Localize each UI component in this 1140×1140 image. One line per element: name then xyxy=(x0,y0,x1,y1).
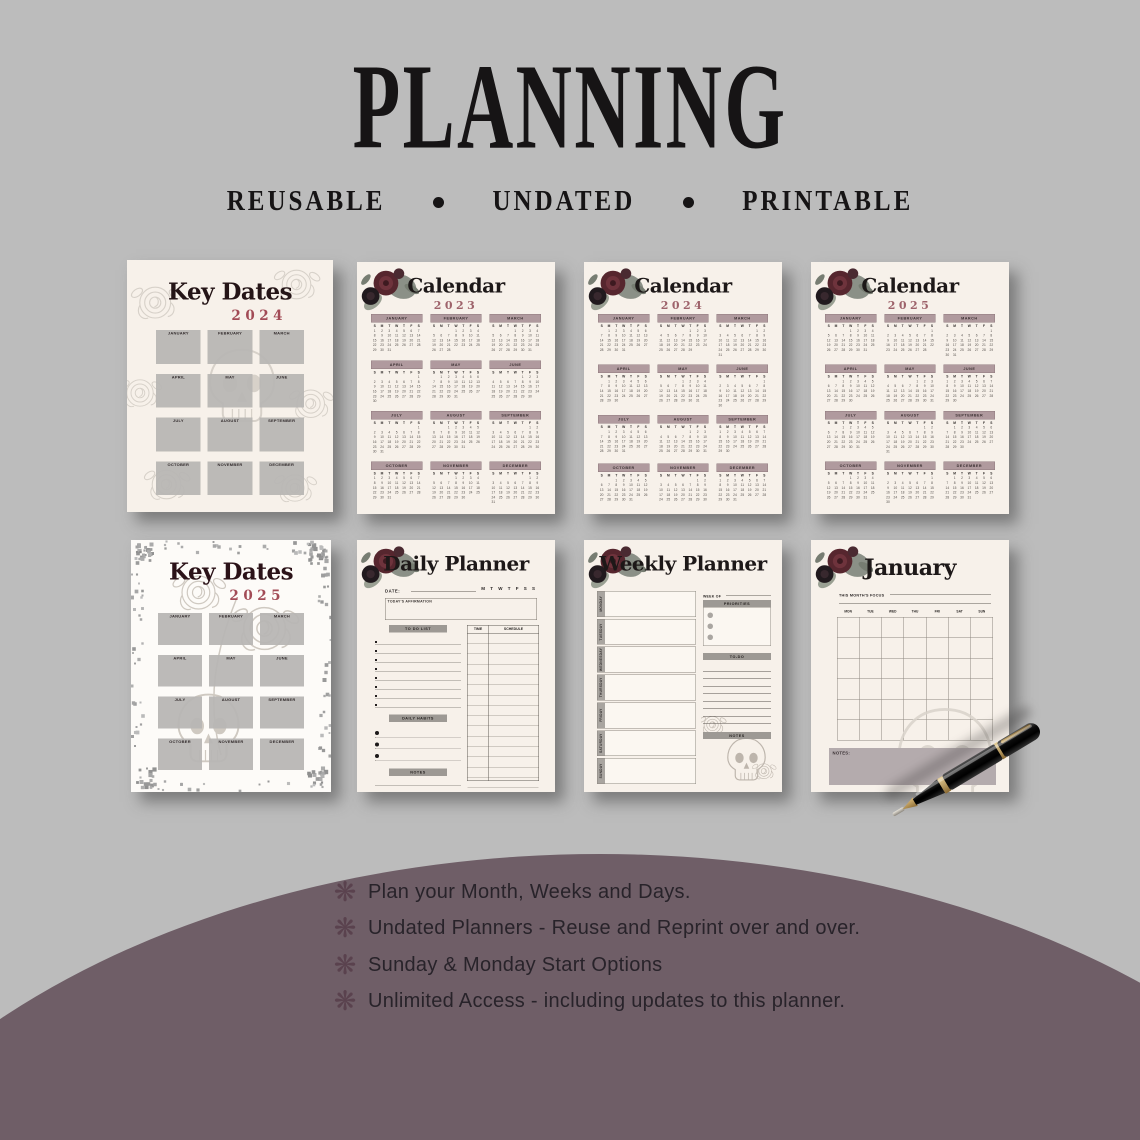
mini-month-header: JUNE xyxy=(944,365,995,374)
day-number: 27 xyxy=(973,348,980,353)
date-label: DATE: xyxy=(385,589,400,594)
day-number: 24 xyxy=(892,348,899,353)
mini-month-september: SEPTEMBERSMTWTFS123456789101112131415161… xyxy=(490,411,541,455)
mini-month-january: JANUARYSMTWTFS12345678910111213141516171… xyxy=(371,314,422,353)
day-number: 27 xyxy=(980,394,987,399)
day-number: 28 xyxy=(753,399,760,404)
day-box-wednesday: WEDNESDAY xyxy=(597,647,696,673)
mini-month-days: SMTWTFS123456789101112131415161718192021… xyxy=(371,471,422,500)
day-box-thursday: THURSDAY xyxy=(597,675,696,701)
day-tab-label: TUESDAY xyxy=(600,623,604,640)
mini-month-days: SMTWTFS123456789101112131415161718192021… xyxy=(884,375,935,404)
weekday-header-fri: FRI xyxy=(926,610,948,614)
month-label: SEPTEMBER xyxy=(259,419,304,424)
mini-month-header: DECEMBER xyxy=(490,461,541,470)
todo-header: TO-DO xyxy=(703,653,771,660)
badge-undated: UNDATED xyxy=(492,186,635,218)
day-number: 27 xyxy=(512,495,519,500)
day-number: 27 xyxy=(504,394,511,399)
mini-month-days: SMTWTFS123456789101112131415161718192021… xyxy=(944,324,995,358)
calendar-cell xyxy=(860,659,882,680)
day-number: 27 xyxy=(497,348,504,353)
day-number: 26 xyxy=(430,495,437,500)
day-number: 30 xyxy=(958,495,965,500)
month-label: OCTOBER xyxy=(156,462,201,467)
mini-month-april: APRILSMTWTFS1234567891011121314151617181… xyxy=(825,365,876,404)
mini-month-header: JUNE xyxy=(490,360,541,369)
day-number: 29 xyxy=(951,445,958,450)
day-number: 24 xyxy=(620,394,627,399)
calendar-cell xyxy=(838,700,860,721)
mini-month-header: JUNE xyxy=(717,365,768,374)
todo-line xyxy=(375,645,461,654)
todo-lines xyxy=(703,664,771,724)
mini-month-days: SMTWTFS123456789101112131415161718192021… xyxy=(825,375,876,404)
day-number: 26 xyxy=(746,493,753,498)
day-number: 26 xyxy=(490,348,497,353)
priorities-box xyxy=(703,607,771,646)
calendar-cell xyxy=(882,679,904,700)
mini-month-header: NOVEMBER xyxy=(430,461,481,470)
day-number: 28 xyxy=(840,495,847,500)
day-number: 27 xyxy=(642,394,649,399)
month-box-june: JUNE xyxy=(259,374,304,408)
mini-month-october: OCTOBERSMTWTFS12345678910111213141516171… xyxy=(598,464,649,505)
schedule-row xyxy=(468,685,539,695)
schedule-row xyxy=(468,778,539,788)
day-number: 29 xyxy=(415,394,422,399)
calendar-cell xyxy=(904,679,926,700)
mini-month-header: DECEMBER xyxy=(717,464,768,473)
day-tab-label: FRIDAY xyxy=(600,709,604,722)
mini-month-february: FEBRUARYSMTWTFS1234567891011121314151617… xyxy=(430,314,481,353)
day-number: 28 xyxy=(512,394,519,399)
planner-page-key-dates-2024: Key Dates 2024 JANUARYFEBRUARYMARCHAPRIL… xyxy=(127,260,333,512)
month-box-december: DECEMBER xyxy=(259,461,304,495)
day-number: 29 xyxy=(526,445,533,450)
calendar-cell xyxy=(860,679,882,700)
day-number: 27 xyxy=(988,440,995,445)
separator-dot-icon xyxy=(683,197,694,208)
day-number: 27 xyxy=(512,445,519,450)
day-number: 25 xyxy=(657,348,664,353)
day-number: 26 xyxy=(746,444,753,449)
weekday-header-sat: SAT xyxy=(948,610,970,614)
page-title-key-dates: Key Dates xyxy=(131,558,331,585)
feature-item: ❋Undated Planners - Reuse and Reprint ov… xyxy=(330,911,950,948)
day-number: 29 xyxy=(914,399,921,404)
day-number: 31 xyxy=(452,394,459,399)
day-number: 31 xyxy=(701,449,708,454)
mini-month-days: SMTWTFS123456789101112131415161718192021… xyxy=(490,421,541,450)
day-number: 27 xyxy=(914,495,921,500)
day-number: 25 xyxy=(627,444,634,449)
month-box-september: SEPTEMBER xyxy=(260,697,304,729)
day-number: 28 xyxy=(944,445,951,450)
day-number: 29 xyxy=(371,495,378,500)
day-number: 29 xyxy=(452,495,459,500)
day-number: 25 xyxy=(474,491,481,496)
page-year: 2024 xyxy=(127,308,333,324)
month-label: JANUARY xyxy=(156,331,201,336)
day-number: 30 xyxy=(534,495,541,500)
day-tab: SATURDAY xyxy=(598,731,606,756)
focus-line-2 xyxy=(839,603,991,604)
checkbox-icon xyxy=(375,650,377,652)
day-number: 27 xyxy=(914,348,921,353)
planner-page-calendar-2025: Calendar 2025 JANUARYSMTWTFS123456789101… xyxy=(811,262,1009,514)
calendar-cell xyxy=(838,638,860,659)
mini-month-february: FEBRUARYSMTWTFS1234567891011121314151617… xyxy=(884,314,935,358)
weekday-header-wed: WED xyxy=(882,610,904,614)
priority-bullet xyxy=(708,624,714,630)
daily-habits-header: DAILY HABITS xyxy=(389,715,447,723)
day-number: 26 xyxy=(973,394,980,399)
flower-bullet-icon: ❋ xyxy=(330,915,360,942)
day-number: 31 xyxy=(378,450,385,455)
day-number: 26 xyxy=(892,399,899,404)
page-title-january: January xyxy=(811,555,1009,581)
daily-left-column: TO DO LIST DAILY HABITS NOTES xyxy=(374,625,462,792)
day-number: 29 xyxy=(694,498,701,503)
day-number: 28 xyxy=(438,445,445,450)
day-number: 24 xyxy=(724,399,731,404)
todo-list-header: TO DO LIST xyxy=(389,625,447,633)
calendar-cell xyxy=(860,700,882,721)
day-number: 27 xyxy=(825,445,832,450)
todo-line xyxy=(375,663,461,672)
feature-item: ❋Sunday & Monday Start Options xyxy=(330,947,950,984)
todo-line xyxy=(703,664,771,672)
mini-month-february: FEBRUARYSMTWTFS1234567891011121314151617… xyxy=(657,314,708,358)
day-number: 26 xyxy=(393,394,400,399)
day-number: 28 xyxy=(687,498,694,503)
mini-month-july: JULYSMTWTFS12345678910111213141516171819… xyxy=(371,411,422,455)
day-number: 25 xyxy=(892,445,899,450)
mini-month-header: FEBRUARY xyxy=(657,314,708,323)
page-year: 2024 xyxy=(584,299,782,312)
mini-month-days: SMTWTFS123456789101112131415161718192021… xyxy=(430,471,481,500)
weekly-right-column: WEEK OF PRIORITIES TO-DO NOTES xyxy=(703,591,771,739)
priorities-header: PRIORITIES xyxy=(703,600,771,607)
schedule-rows xyxy=(468,634,539,788)
day-number: 29 xyxy=(605,399,612,404)
day-number: 26 xyxy=(393,445,400,450)
day-tab: THURSDAY xyxy=(598,675,606,700)
day-number: 26 xyxy=(731,348,738,353)
day-number: 24 xyxy=(701,343,708,348)
month-label: NOVEMBER xyxy=(208,462,253,467)
mini-month-header: DECEMBER xyxy=(944,461,995,470)
schedule-row xyxy=(468,716,539,726)
mini-month-days: SMTWTFS123456789101112131415161718192021… xyxy=(884,421,935,455)
day-number: 27 xyxy=(988,491,995,496)
day-number: 30 xyxy=(847,445,854,450)
weekday-boxes: MONDAYTUESDAYWEDNESDAYTHURSDAYFRIDAYSATU… xyxy=(597,591,696,784)
mini-month-header: MARCH xyxy=(717,314,768,323)
day-number: 29 xyxy=(519,394,526,399)
day-number: 31 xyxy=(627,498,634,503)
month-box-december: DECEMBER xyxy=(260,738,304,770)
day-number: 29 xyxy=(761,399,768,404)
day-number: 29 xyxy=(753,348,760,353)
mini-month-days: SMTWTFS123456789101112131415161718192021… xyxy=(490,370,541,399)
day-number: 27 xyxy=(679,498,686,503)
mini-month-days: SMTWTFS123456789101112131415161718192021… xyxy=(717,425,768,454)
day-number: 29 xyxy=(840,399,847,404)
mini-month-november: NOVEMBERSMTWTFS1234567891011121314151617… xyxy=(430,461,481,505)
day-number: 28 xyxy=(832,445,839,450)
todo-line xyxy=(375,672,461,681)
day-number: 31 xyxy=(620,449,627,454)
day-number: 27 xyxy=(746,399,753,404)
mini-month-header: SEPTEMBER xyxy=(717,415,768,424)
day-number: 29 xyxy=(988,348,995,353)
day-number: 28 xyxy=(746,348,753,353)
feature-text: Plan your Month, Weeks and Days. xyxy=(368,881,691,904)
priority-bullet xyxy=(708,613,714,619)
day-number: 26 xyxy=(635,444,642,449)
day-number: 29 xyxy=(687,449,694,454)
day-number: 25 xyxy=(862,394,869,399)
mini-month-november: NOVEMBERSMTWTFS1234567891011121314151617… xyxy=(884,461,935,505)
day-box-tuesday: TUESDAY xyxy=(597,619,696,645)
mini-month-march: MARCHSMTWTFS1234567891011121314151617181… xyxy=(944,314,995,358)
day-number: 23 xyxy=(694,343,701,348)
day-number: 30 xyxy=(854,348,861,353)
feature-item: ❋Unlimited Access - including updates to… xyxy=(330,984,950,1021)
mini-month-march: MARCHSMTWTFS1234567891011121314151617181… xyxy=(490,314,541,353)
mini-month-days: SMTWTFS123456789101112131415161718192021… xyxy=(825,324,876,353)
planner-page-calendar-2024: Calendar 2024 JANUARYSMTWTFS123456789101… xyxy=(584,262,782,514)
day-number: 30 xyxy=(724,498,731,503)
todo-line xyxy=(375,690,461,699)
day-number: 26 xyxy=(825,348,832,353)
month-box-march: MARCH xyxy=(259,330,304,364)
day-number: 26 xyxy=(869,394,876,399)
page-year: 2025 xyxy=(811,299,1009,312)
page-title-calendar: Calendar xyxy=(357,274,555,298)
schedule-row xyxy=(468,695,539,705)
day-box-sunday: SUNDAY xyxy=(597,758,696,784)
day-number: 23 xyxy=(460,343,467,348)
calendar-cell xyxy=(838,659,860,680)
todo-line xyxy=(703,709,771,717)
weekday-header-thu: THU xyxy=(904,610,926,614)
day-number: 25 xyxy=(884,399,891,404)
weekday-header-mon: MON xyxy=(837,610,859,614)
mini-month-header: JANUARY xyxy=(825,314,876,323)
schedule-row xyxy=(468,644,539,654)
mini-month-july: JULYSMTWTFS12345678910111213141516171819… xyxy=(825,411,876,455)
day-number: 26 xyxy=(665,348,672,353)
flower-bullet-icon: ❋ xyxy=(330,988,360,1015)
feature-text: Unlimited Access - including updates to … xyxy=(368,990,845,1013)
day-number: 25 xyxy=(862,440,869,445)
day-number: 25 xyxy=(534,343,541,348)
todo-line xyxy=(375,654,461,663)
subtitle-badges: REUSABLEUNDATEDPRINTABLE xyxy=(0,188,1140,216)
day-number: 24 xyxy=(892,495,899,500)
day-number: 26 xyxy=(400,491,407,496)
feature-text: Sunday & Monday Start Options xyxy=(368,954,662,977)
day-number: 27 xyxy=(832,495,839,500)
day-number: 30 xyxy=(460,495,467,500)
day-number: 31 xyxy=(460,445,467,450)
mini-month-days: SMTWTFS123456789101112131415161718192021… xyxy=(598,425,649,454)
day-number: 25 xyxy=(497,445,504,450)
day-number: 28 xyxy=(914,445,921,450)
day-number: 29 xyxy=(438,394,445,399)
calendar-cell xyxy=(971,618,993,639)
checkbox-icon xyxy=(375,686,377,688)
habit-lines xyxy=(374,726,462,761)
day-number: 25 xyxy=(393,491,400,496)
mini-month-june: JUNESMTWTFS12345678910111213141516171819… xyxy=(717,365,768,409)
habit-bullet-icon xyxy=(375,731,379,735)
day-number: 22 xyxy=(452,343,459,348)
day-number: 29 xyxy=(445,445,452,450)
day-number: 28 xyxy=(679,449,686,454)
mini-month-days: SMTWTFS123456789101112131415161718192021… xyxy=(657,425,708,454)
day-number: 26 xyxy=(430,348,437,353)
mini-month-header: AUGUST xyxy=(884,411,935,420)
day-number: 25 xyxy=(869,343,876,348)
calendar-cell xyxy=(949,638,971,659)
month-label: MARCH xyxy=(259,331,304,336)
month-box-february: FEBRUARY xyxy=(208,330,253,364)
month-grid xyxy=(837,617,993,741)
day-number: 25 xyxy=(657,449,664,454)
mini-month-january: JANUARYSMTWTFS12345678910111213141516171… xyxy=(825,314,876,358)
checkbox-icon xyxy=(375,659,377,661)
day-number: 26 xyxy=(906,495,913,500)
day-number: 28 xyxy=(598,348,605,353)
day-number: 28 xyxy=(988,394,995,399)
day-number: 26 xyxy=(467,389,474,394)
feature-text: Undated Planners - Reuse and Reprint ove… xyxy=(368,917,860,940)
calendar-cell xyxy=(971,638,993,659)
schedule-column-header: SCHEDULE xyxy=(489,626,539,634)
day-number: 28 xyxy=(840,348,847,353)
day-number: 31 xyxy=(694,399,701,404)
todo-line xyxy=(703,717,771,725)
todo-line xyxy=(703,694,771,702)
mini-month-august: AUGUSTSMTWTFS123456789101112131415161718… xyxy=(884,411,935,455)
mini-month-header: OCTOBER xyxy=(371,461,422,470)
day-number: 30 xyxy=(534,445,541,450)
day-number: 28 xyxy=(605,498,612,503)
mini-month-days: SMTWTFS123456789101112131415161718192021… xyxy=(430,421,481,450)
month-label: OCTOBER xyxy=(158,739,202,744)
day-number: 26 xyxy=(497,394,504,399)
month-label: APRIL xyxy=(158,656,202,661)
mini-month-header: OCTOBER xyxy=(598,464,649,473)
calendar-cell xyxy=(971,679,993,700)
checkbox-icon xyxy=(375,695,377,697)
month-box-july: JULY xyxy=(156,418,201,452)
mini-month-june: JUNESMTWTFS12345678910111213141516171819… xyxy=(490,360,541,404)
day-number: 27 xyxy=(672,449,679,454)
calendar-cell xyxy=(949,659,971,680)
month-label: MAY xyxy=(208,375,253,380)
day-number: 25 xyxy=(460,389,467,394)
pen-tip-icon xyxy=(892,807,905,817)
feature-item: ❋Plan your Month, Weeks and Days. xyxy=(330,874,950,911)
habit-bullet-icon xyxy=(375,743,379,747)
day-number: 28 xyxy=(519,445,526,450)
mini-month-days: SMTWTFS123456789101112131415161718192021… xyxy=(657,324,708,353)
day-number: 24 xyxy=(378,394,385,399)
day-number: 29 xyxy=(512,348,519,353)
mini-month-may: MAYSMTWTFS123456789101112131415161718192… xyxy=(430,360,481,404)
day-number: 28 xyxy=(761,444,768,449)
day-number: 25 xyxy=(966,394,973,399)
day-number: 26 xyxy=(966,348,973,353)
flower-bullet-icon: ❋ xyxy=(330,952,360,979)
day-number: 28 xyxy=(679,348,686,353)
day-number: 25 xyxy=(731,399,738,404)
planner-page-key-dates-2025: Key Dates 2025 JANUARYFEBRUARYMARCHAPRIL… xyxy=(131,540,331,792)
mini-month-days: SMTWTFS123456789101112131415161718192021… xyxy=(371,324,422,353)
day-number: 25 xyxy=(474,343,481,348)
day-tab-label: THURSDAY xyxy=(600,678,604,698)
day-number: 26 xyxy=(899,445,906,450)
focus-line xyxy=(890,595,991,596)
mini-month-header: JANUARY xyxy=(598,314,649,323)
day-number: 30 xyxy=(724,449,731,454)
day-number: 29 xyxy=(605,348,612,353)
day-box-friday: FRIDAY xyxy=(597,702,696,728)
day-number: 30 xyxy=(620,498,627,503)
affirmation-label: TODAY'S AFFIRMATION xyxy=(386,599,537,606)
day-number: 30 xyxy=(958,445,965,450)
calendar-cell xyxy=(904,659,926,680)
month-box-september: SEPTEMBER xyxy=(259,418,304,452)
day-number: 31 xyxy=(966,495,973,500)
day-number: 25 xyxy=(739,493,746,498)
mini-month-october: OCTOBERSMTWTFS12345678910111213141516171… xyxy=(825,461,876,505)
day-number: 28 xyxy=(430,394,437,399)
day-number: 27 xyxy=(825,399,832,404)
mini-month-may: MAYSMTWTFS123456789101112131415161718192… xyxy=(657,365,708,409)
year-calendar-grid: JANUARYSMTWTFS12345678910111213141516171… xyxy=(598,314,768,505)
day-number: 28 xyxy=(415,343,422,348)
day-number: 29 xyxy=(951,495,958,500)
month-box-march: MARCH xyxy=(260,613,304,645)
day-number: 28 xyxy=(408,394,415,399)
checkbox-icon xyxy=(375,704,377,706)
note-line xyxy=(375,779,461,786)
day-number: 25 xyxy=(635,493,642,498)
mini-month-days: SMTWTFS123456789101112131415161718192021… xyxy=(717,474,768,503)
day-number: 30 xyxy=(944,353,951,358)
day-number: 28 xyxy=(598,449,605,454)
weekday-letters: M T W T F S S xyxy=(481,586,537,591)
weekday-header-sun: SUN xyxy=(971,610,993,614)
schedule-row xyxy=(468,634,539,644)
month-box-may: MAY xyxy=(208,374,253,408)
time-column-header: TIME xyxy=(468,626,489,634)
mini-month-days: SMTWTFS123456789101112131415161718192021… xyxy=(944,375,995,404)
day-number: 30 xyxy=(371,450,378,455)
focus-label: THIS MONTH'S FOCUS xyxy=(839,593,884,598)
day-number: 28 xyxy=(445,348,452,353)
mini-month-header: OCTOBER xyxy=(825,461,876,470)
schedule-row xyxy=(468,664,539,674)
day-number: 27 xyxy=(642,444,649,449)
mini-month-days: SMTWTFS123456789101112131415161718192021… xyxy=(717,324,768,358)
